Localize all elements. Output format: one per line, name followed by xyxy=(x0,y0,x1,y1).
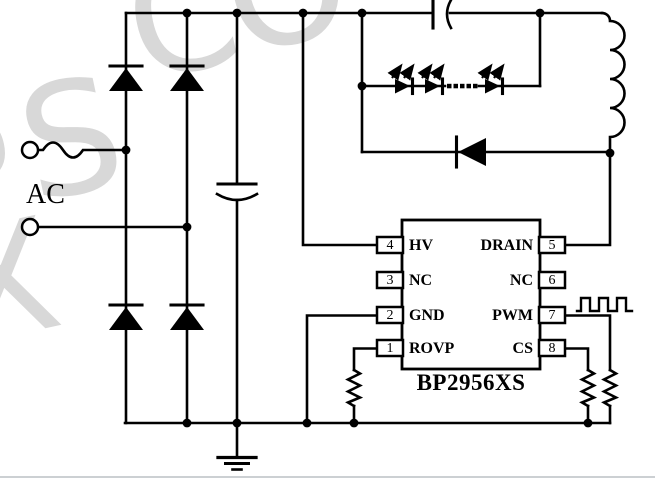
cs-pin-wire xyxy=(565,349,588,371)
pin-label-cs: CS xyxy=(443,340,533,356)
ground-icon xyxy=(218,458,256,470)
pin-number-6: 6 xyxy=(539,272,565,288)
ac-live-wire-with-fuse xyxy=(38,143,126,158)
bottom-rule xyxy=(0,476,655,478)
bridge-diode-top-right xyxy=(170,66,204,91)
bridge-diode-bottom-right xyxy=(170,305,204,330)
pin-number-8: 8 xyxy=(539,340,565,356)
schematic-canvas: P S C O X xyxy=(0,0,655,484)
pwm-resistor xyxy=(604,370,616,406)
ac-terminal-live xyxy=(22,142,38,158)
led-1 xyxy=(392,67,413,94)
rovp-resistor xyxy=(348,370,360,406)
pin-number-3: 3 xyxy=(377,272,403,288)
led-string xyxy=(392,67,503,94)
inductor xyxy=(602,13,625,153)
pin-label-drain: DRAIN xyxy=(443,237,533,253)
bulk-capacitor xyxy=(217,184,257,200)
pin-number-7: 7 xyxy=(539,307,565,323)
bridge-diode-bottom-left xyxy=(109,305,143,330)
pin-number-4: 4 xyxy=(377,237,403,253)
drain-pin-wire xyxy=(565,154,610,245)
pwm-waveform-icon xyxy=(577,298,632,311)
pin-number-5: 5 xyxy=(539,237,565,253)
pin-label-pwm: PWM xyxy=(443,307,533,323)
gnd-pin-wire xyxy=(307,316,377,424)
led-string-ellipsis xyxy=(447,84,478,89)
pin-number-2: 2 xyxy=(377,307,403,323)
rovp-pin-wire xyxy=(354,349,377,371)
pin-label-nc-right: NC xyxy=(443,272,533,288)
ac-label: AC xyxy=(26,179,65,211)
ac-terminal-neutral xyxy=(22,219,38,235)
output-capacitor xyxy=(433,0,451,28)
ic-part-number: BP2956XS xyxy=(402,370,540,396)
led-n xyxy=(482,67,503,94)
hv-pin-wire xyxy=(303,13,377,245)
freewheel-diode xyxy=(457,137,487,167)
led-2 xyxy=(422,67,443,94)
bridge-diode-top-left xyxy=(109,66,143,91)
cs-resistor xyxy=(582,370,594,406)
pin-number-1: 1 xyxy=(377,340,403,356)
